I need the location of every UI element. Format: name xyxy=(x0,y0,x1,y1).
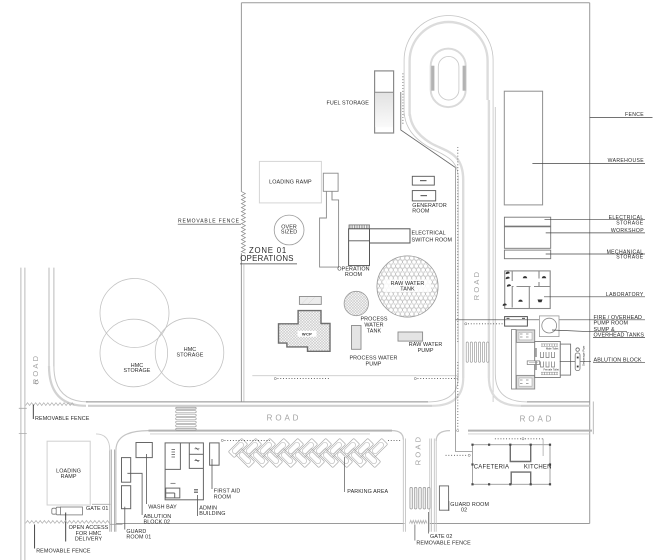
svg-text:RAMP: RAMP xyxy=(61,474,77,480)
svg-text:PUMP ROOM: PUMP ROOM xyxy=(594,321,629,327)
svg-text:PARKING AREA: PARKING AREA xyxy=(347,489,388,495)
svg-text:WCP: WCP xyxy=(302,331,312,336)
svg-text:ROAD: ROAD xyxy=(520,415,555,424)
svg-text:TANK: TANK xyxy=(400,287,415,293)
svg-text:GATE 01: GATE 01 xyxy=(86,506,108,512)
svg-text:PUMP: PUMP xyxy=(418,348,434,354)
svg-text:Sewerage Pipe: Sewerage Pipe xyxy=(582,345,586,366)
svg-text:LOADING RAMP: LOADING RAMP xyxy=(269,179,312,185)
svg-text:WAREHOUSE: WAREHOUSE xyxy=(608,158,645,164)
svg-text:STORAGE: STORAGE xyxy=(124,368,151,374)
svg-text:WASH BAY: WASH BAY xyxy=(148,504,177,510)
svg-text:WORKSHOP: WORKSHOP xyxy=(611,228,644,234)
svg-text:STORAGE: STORAGE xyxy=(616,220,644,226)
svg-text:KITCHEN: KITCHEN xyxy=(524,464,552,470)
svg-text:PUMP: PUMP xyxy=(366,361,382,367)
svg-text:DELIVERY: DELIVERY xyxy=(75,537,103,543)
svg-text:Male Toilet: Male Toilet xyxy=(546,347,559,351)
svg-text:ROAD: ROAD xyxy=(414,435,423,465)
svg-text:ROAD: ROAD xyxy=(267,413,302,422)
svg-text:BLOCK 02: BLOCK 02 xyxy=(144,520,171,526)
svg-text:TANK: TANK xyxy=(367,328,382,334)
svg-text:ROOM: ROOM xyxy=(345,272,363,278)
svg-text:GATE 02: GATE 02 xyxy=(430,534,452,540)
svg-text:OPERATIONS: OPERATIONS xyxy=(240,254,294,263)
svg-text:02: 02 xyxy=(461,507,467,513)
svg-text:SIZED: SIZED xyxy=(281,230,297,236)
svg-text:CAFETERIA: CAFETERIA xyxy=(474,464,509,470)
svg-text:REMOVABLE FENCE: REMOVABLE FENCE xyxy=(36,548,91,554)
svg-text:ROOM: ROOM xyxy=(412,209,430,215)
svg-text:Female Toilet: Female Toilet xyxy=(544,368,560,372)
svg-text:REMOVABLE FENCE: REMOVABLE FENCE xyxy=(178,219,240,225)
svg-text:REMOVABLE FENCE: REMOVABLE FENCE xyxy=(416,540,471,546)
svg-text:REMOVABLE FENCE: REMOVABLE FENCE xyxy=(35,416,90,422)
svg-text:GUARD ROOM: GUARD ROOM xyxy=(450,502,489,508)
svg-text:ROAD: ROAD xyxy=(31,354,40,384)
svg-text:ELECTRICAL: ELECTRICAL xyxy=(412,231,446,237)
svg-text:STORAGE: STORAGE xyxy=(616,254,644,260)
svg-text:ROOM: ROOM xyxy=(214,494,232,500)
svg-text:ROAD: ROAD xyxy=(472,270,481,300)
svg-text:BUILDING: BUILDING xyxy=(199,511,225,517)
svg-text:STORAGE: STORAGE xyxy=(177,352,204,358)
svg-text:SWITCH ROOM: SWITCH ROOM xyxy=(412,238,453,244)
svg-text:ROOM 01: ROOM 01 xyxy=(126,535,151,541)
svg-text:FUEL STORAGE: FUEL STORAGE xyxy=(326,101,369,107)
svg-text:FENCE: FENCE xyxy=(625,112,644,118)
